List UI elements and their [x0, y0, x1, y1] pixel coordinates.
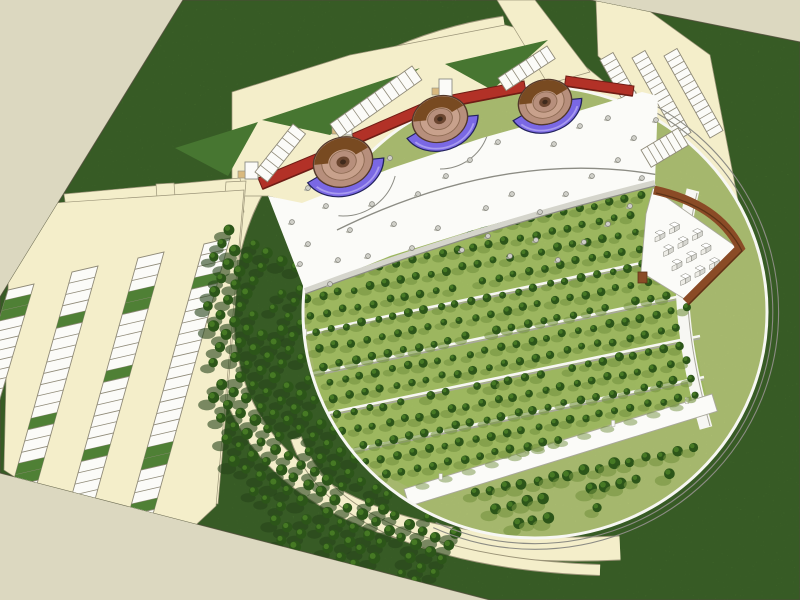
plaza-sphere: [348, 228, 353, 233]
plaza-sphere: [484, 206, 489, 211]
plaza-sphere: [654, 118, 659, 123]
plaza-sphere: [632, 136, 637, 141]
plaza-sphere: [606, 116, 611, 121]
site-plan-render: [0, 0, 800, 600]
plaza-sphere: [468, 158, 473, 163]
plaza-sphere: [590, 174, 595, 179]
plaza-sphere: [416, 192, 421, 197]
plaza-sphere: [486, 234, 491, 239]
plaza-sphere: [388, 156, 393, 161]
aerial-render-canvas: [0, 0, 800, 600]
entrance-kiosk: [439, 79, 452, 96]
plaza-sphere: [640, 176, 645, 181]
plaza-sphere: [370, 202, 375, 207]
plaza-sphere: [510, 192, 515, 197]
plaza-sphere: [298, 262, 303, 267]
plaza-sphere: [444, 174, 449, 179]
plaza-sphere: [628, 204, 633, 209]
plaza-sphere: [564, 192, 569, 197]
plaza-sphere: [578, 124, 583, 129]
plaza-sphere: [328, 282, 333, 287]
plaza-sphere: [552, 142, 557, 147]
plaza-sphere: [306, 186, 311, 191]
plaza-sphere: [392, 222, 397, 227]
plaza-sphere: [306, 242, 311, 247]
plaza-sphere: [290, 220, 295, 225]
plaza-sphere: [508, 254, 513, 259]
plaza-sphere: [460, 248, 465, 253]
plaza-sphere: [336, 258, 341, 263]
plaza-sphere: [556, 258, 561, 263]
plaza-sphere: [366, 254, 371, 259]
plaza-sphere: [436, 226, 441, 231]
plaza-sphere: [496, 140, 501, 145]
plaza-sphere: [534, 238, 539, 243]
plaza-sphere: [606, 222, 611, 227]
plaza-sphere: [410, 246, 415, 251]
plaza-sphere: [582, 240, 587, 245]
plaza-sphere: [324, 204, 329, 209]
plaza-sphere: [538, 210, 543, 215]
plaza-sphere: [616, 158, 621, 163]
